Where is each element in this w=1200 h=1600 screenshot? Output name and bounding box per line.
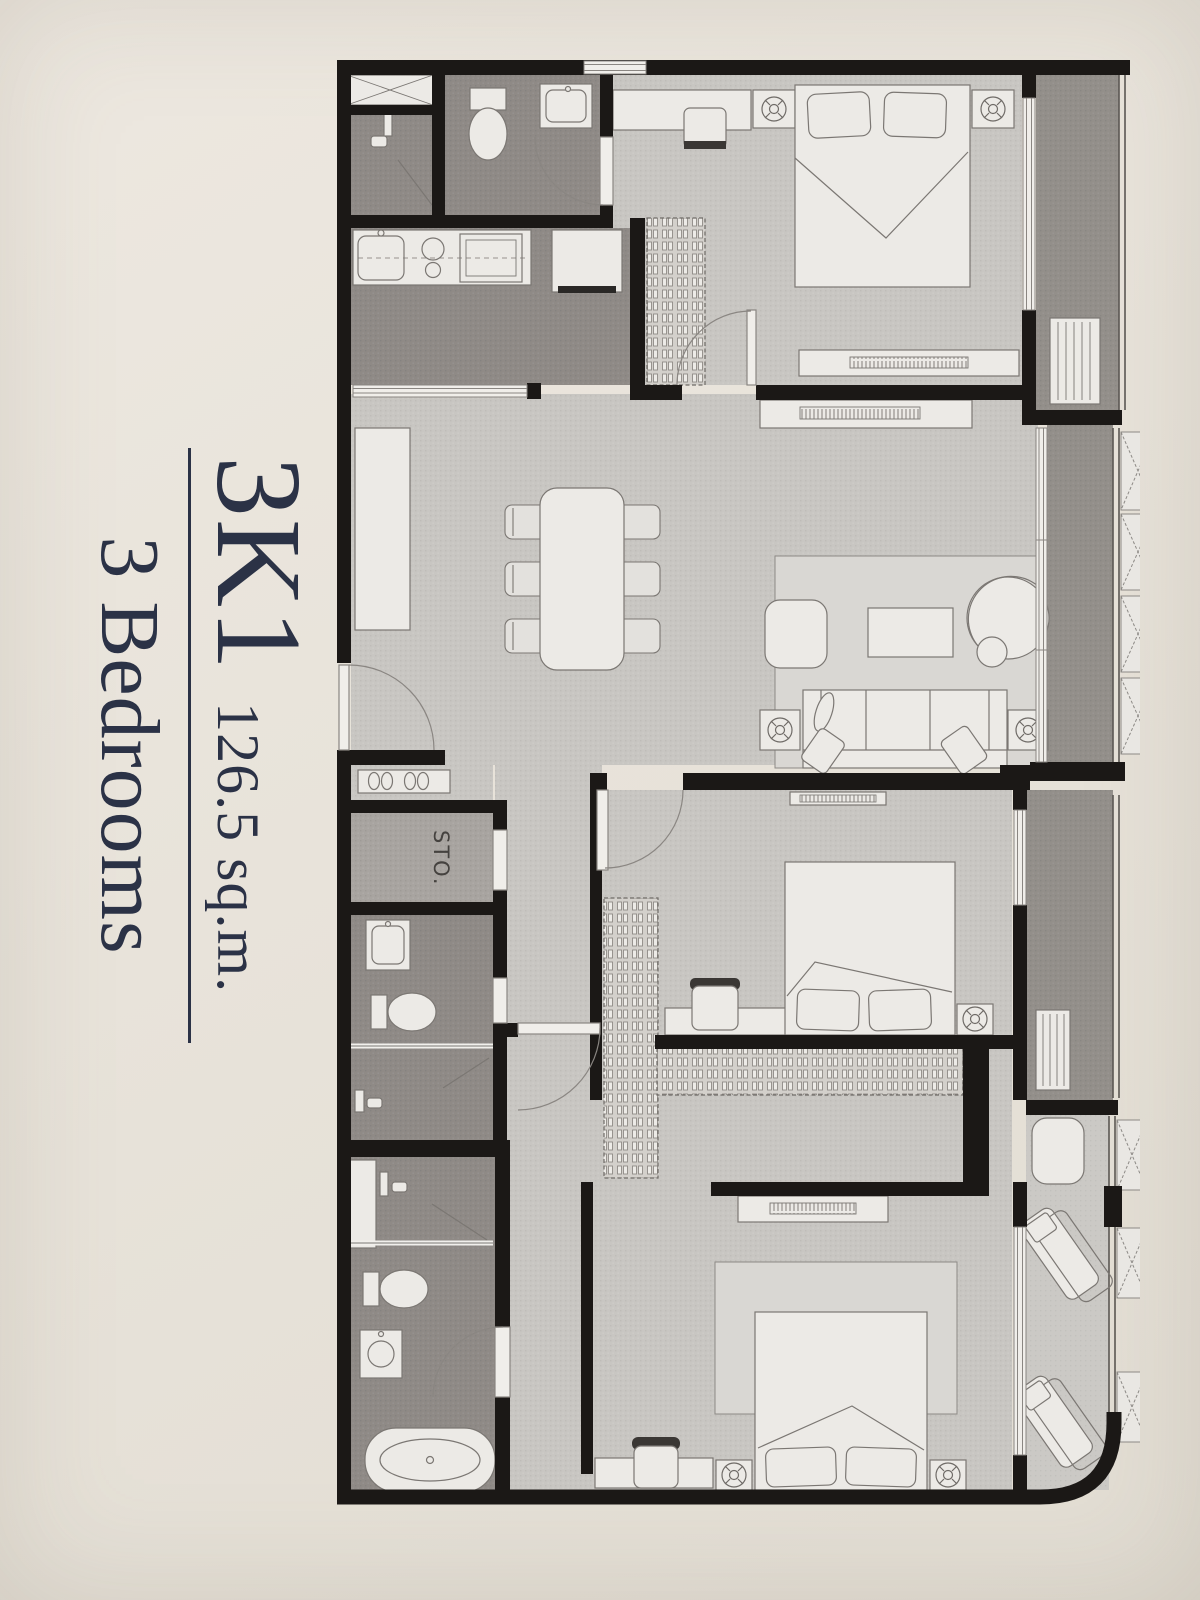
shower-head-2 — [355, 1090, 364, 1112]
window-top — [584, 61, 646, 74]
shower-head-3 — [380, 1172, 388, 1196]
unit-bedrooms: 3 Bedrooms — [81, 448, 178, 1043]
basin-1-tap — [566, 87, 571, 92]
window-bedroom-2 — [1014, 810, 1026, 905]
coffee-table — [868, 608, 953, 657]
pillow — [883, 92, 946, 138]
nightstand — [957, 1004, 993, 1035]
lounge-ottoman — [977, 637, 1007, 667]
fridge — [552, 230, 622, 292]
toilet-2-tank — [371, 995, 387, 1029]
glass-panels — [1117, 432, 1140, 1442]
window-master — [1014, 1227, 1026, 1455]
toilet-2-bowl — [388, 993, 436, 1031]
basin-1-bowl — [546, 90, 586, 122]
pillow — [765, 1447, 836, 1487]
desk-1 — [613, 90, 751, 130]
master-glass-panels — [1117, 1120, 1140, 1442]
sliding-door-kitchen — [353, 385, 527, 397]
toilet-1-tank — [470, 88, 506, 110]
toilet-3-bowl — [380, 1270, 428, 1308]
storage-floor — [351, 813, 493, 902]
floor-plan: STO. — [325, 48, 1140, 1523]
pillow — [807, 91, 871, 138]
kitchen-tap — [378, 230, 384, 236]
brochure-page: 3K1 126.5 sq.m. 3 Bedrooms — [0, 0, 1200, 1600]
unit-title-row: 3K1 126.5 sq.m. — [188, 448, 313, 1043]
balcony-1-rail — [1119, 75, 1125, 410]
shower-head — [384, 112, 392, 136]
kitchen — [353, 230, 622, 293]
balcony-2-floor — [1047, 425, 1113, 765]
desk-2-chair — [692, 986, 738, 1030]
pillow — [845, 1447, 916, 1487]
fridge-handle — [558, 286, 616, 293]
balcony-table — [1032, 1118, 1084, 1184]
walk-in-closet — [657, 1048, 963, 1095]
ac-unit-1 — [1050, 318, 1100, 404]
balcony-3-rail — [1113, 795, 1119, 1098]
balcony-2-rail — [1113, 428, 1119, 763]
unit-area: 126.5 sq.m. — [203, 702, 272, 993]
wardrobe-2 — [604, 898, 658, 1178]
ac-unit-2 — [1036, 1010, 1070, 1090]
unit-label-block: 3K1 126.5 sq.m. 3 Bedrooms — [18, 448, 313, 1043]
master-balcony-rail — [1109, 1116, 1115, 1412]
entry-console — [355, 428, 410, 630]
closet-hatch — [657, 1048, 963, 1095]
master-desk-chair — [634, 1446, 678, 1488]
toilet-1-bowl — [469, 108, 507, 160]
basin-3 — [360, 1330, 402, 1378]
storage-room-label: STO. — [429, 830, 453, 887]
bathtub-drain — [427, 1457, 434, 1464]
nightstand — [753, 90, 795, 128]
toilet-3-tank — [363, 1272, 379, 1306]
bathroom-2-door — [493, 978, 507, 1023]
storage-door — [493, 830, 507, 890]
dining-table — [540, 488, 624, 670]
wardrobe-1 — [647, 218, 705, 385]
pillow — [796, 989, 859, 1031]
window-bedroom-1 — [1023, 98, 1035, 310]
armchair — [765, 600, 827, 668]
side-table — [760, 710, 800, 750]
shower-mixer — [371, 136, 387, 147]
sliding-door-living — [1036, 428, 1047, 762]
pillow — [868, 989, 931, 1031]
living-glass-panels — [1121, 432, 1140, 754]
unit-code: 3K1 — [203, 456, 313, 672]
shower-niche — [348, 1160, 376, 1248]
nightstand — [972, 90, 1014, 128]
